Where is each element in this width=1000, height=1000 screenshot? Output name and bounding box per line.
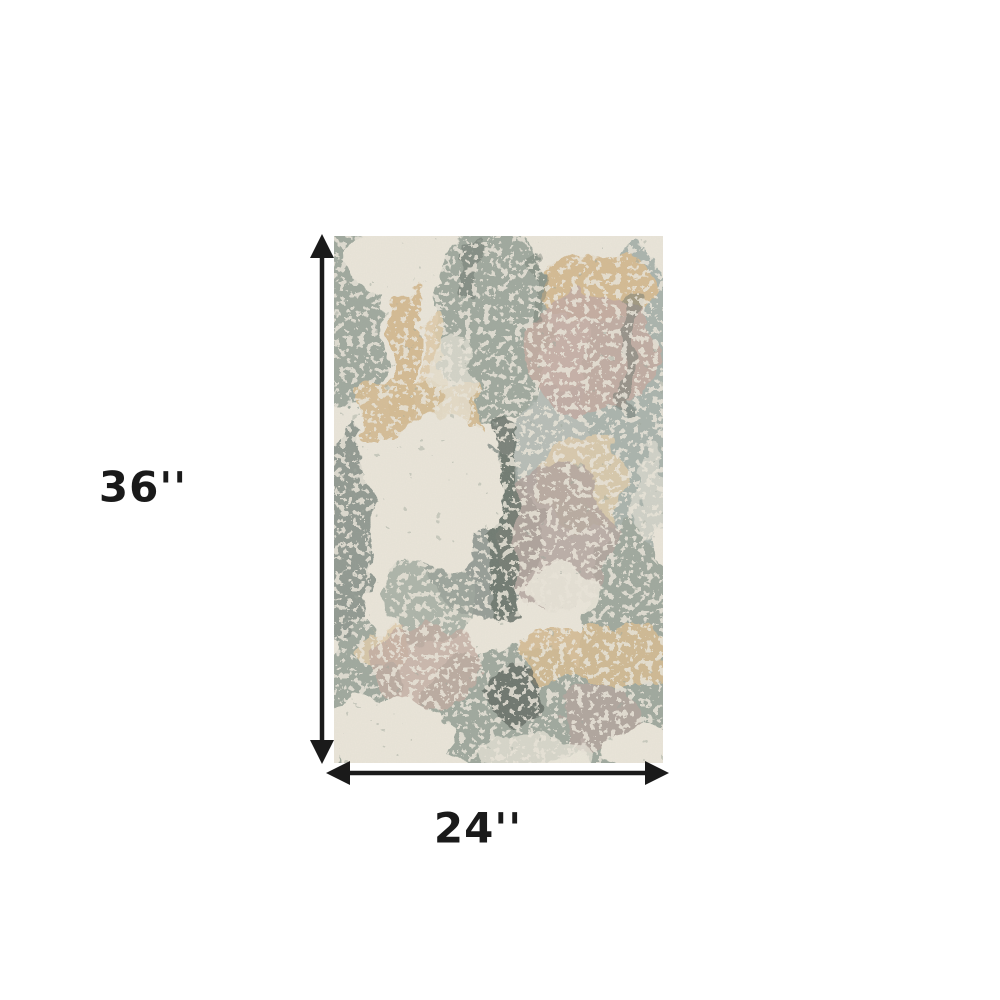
rug-artwork [334, 236, 663, 763]
product-dimension-canvas: 36'' 24'' [0, 0, 1000, 1000]
rug-image [334, 236, 663, 763]
rug-fabric-grain [334, 236, 663, 763]
vertical-dimension-arrow-icon [310, 234, 334, 764]
height-dimension-label: 36'' [99, 463, 187, 512]
width-dimension-label: 24'' [434, 804, 522, 853]
horizontal-dimension-arrow-icon [326, 761, 669, 785]
